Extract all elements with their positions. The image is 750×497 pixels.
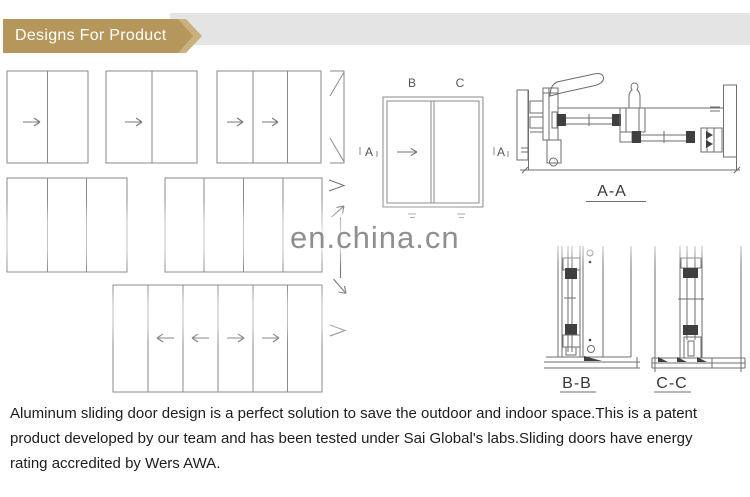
diagram-section-bb: B-B [544, 246, 640, 392]
elevation-label-c: C [456, 76, 465, 90]
diagram-door-elevation: B C A A [360, 76, 508, 218]
diagram-section-cc: C-C [652, 246, 745, 392]
diagram-door-2panel-1 [7, 71, 88, 163]
description-line: product developed by our team and has be… [10, 426, 697, 451]
page: Designs For Product [0, 0, 750, 497]
diagram-section-aa: A-A [517, 74, 740, 202]
diagram-door-3panel-wide [7, 178, 127, 272]
section-bb-label: B-B [562, 375, 592, 392]
elevation-label-a-right: A [497, 145, 505, 159]
section-cc-label: C-C [656, 375, 687, 392]
fold-direction-symbol [330, 71, 344, 163]
description-line: rating accredited by Wers AWA. [10, 451, 697, 476]
product-description: Aluminum sliding door design is a perfec… [10, 401, 697, 476]
description-line: Aluminum sliding door design is a perfec… [10, 401, 697, 426]
diagram-door-6panel [113, 285, 322, 392]
banner-title: Designs For Product [15, 19, 167, 53]
diagram-door-2panel-2 [106, 71, 197, 163]
diagram-door-3panel [217, 71, 321, 163]
watermark-text: en.china.cn [290, 220, 460, 256]
elevation-label-a-left: A [365, 145, 373, 159]
elevation-label-b: B [408, 76, 416, 90]
direction-arrows [329, 180, 346, 336]
section-aa-label: A-A [597, 183, 627, 200]
